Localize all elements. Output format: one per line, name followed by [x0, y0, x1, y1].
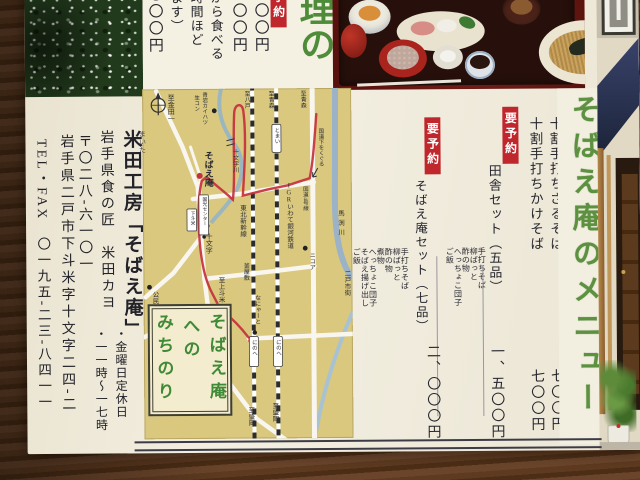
sobaean-location-dot [197, 173, 203, 179]
postal-code: 〒〇二八-六一〇一 [73, 134, 94, 273]
map-label-igr: IGRいわて銀河鉄道 [285, 182, 294, 250]
set-name: そばえ庵セット（七品） [411, 179, 431, 333]
menu-title-strip: そばえ庵のメニュー [557, 88, 599, 444]
map-label-center: 国光センター [201, 197, 207, 226]
tel-fax: TEL・FAX 〇一九五-二三-八四一一 [31, 139, 53, 411]
business-hours: ・一一時～一七時 [93, 328, 111, 432]
note-fragment: ります） [166, 0, 185, 33]
craftsman-line: 岩手県食の匠 米田カヨ [95, 130, 116, 312]
mabechi-river-line [334, 88, 352, 278]
map-title-col: みちのり [151, 313, 177, 405]
restaurant-entrance-photo [596, 0, 640, 450]
map-label-to-kamitomai: 至上斗米 [217, 276, 225, 304]
cut-title-fragment: 理の [288, 0, 333, 62]
top-cut-panel: 、〇〇〇円 ります） 二時間ほど てから食べる 、〇〇〇円 、〇〇〇円 要予約 … [142, 0, 333, 96]
price-fragment: 、〇〇〇円 [228, 0, 250, 54]
map-label-sobaean: そばえ庵 [203, 151, 214, 188]
map-label-kamayashiki: 釜屋敷 [242, 262, 249, 282]
map-label-shimotomai: 下斗米 [189, 211, 195, 227]
note-fragment: てから食べる [206, 0, 226, 61]
reservation-badge: 要予約 [502, 107, 518, 164]
note-fragment: 二時間ほど [186, 0, 205, 47]
map-label-namakon: 生コン [193, 94, 200, 112]
framed-picture [601, 0, 635, 35]
potted-plant [600, 360, 637, 432]
menu-item-price: 七〇〇円 [526, 369, 546, 433]
company-name: 米田工房「そばえ庵」 [117, 129, 145, 339]
set-name: 田舎セット（五品） [485, 164, 505, 295]
map-label-shinkansen: 東北新幹線 [238, 203, 246, 237]
landmark-dots [146, 108, 308, 336]
buckwheat-field-photo [24, 0, 143, 97]
lower-river-line [313, 312, 354, 439]
soba-meal-photo [332, 0, 585, 90]
set-price: 一、五〇〇円 [486, 344, 507, 440]
set-content-item: 手打ちそば [477, 247, 486, 319]
map-label-tomai-station: とまい [273, 127, 280, 144]
map-label-jumonji: 十文字 [205, 232, 213, 254]
plate-item [437, 19, 457, 32]
map-title-col: そばえ庵 [203, 313, 229, 405]
map-label-mabechi: 馬渕川 [336, 210, 344, 239]
plate-item [411, 21, 435, 35]
set-contents: 手打ちそば 柳ばっと 酢の物 煮物 へっちょこ団子 そばえ揚げ出し ご飯 [352, 247, 409, 319]
roof [597, 38, 640, 158]
red-flower [616, 424, 620, 428]
map-title-box: そばえ庵 への みちのり [148, 304, 233, 417]
price-fragment: 、〇〇〇円 [144, 0, 166, 54]
map-label-nanyato: なにゃーと [254, 295, 261, 325]
map-label-to-hachinohe: 至八戸 [243, 91, 250, 110]
reservation-badge: 要予約 [270, 0, 286, 27]
address: 岩手県二戸市下斗米字十文字二四-二 [55, 134, 77, 414]
small-dish-food [440, 50, 456, 62]
map-title-col: への [177, 317, 202, 363]
set-price: 二、〇〇〇円 [422, 344, 443, 440]
bowl-food [359, 6, 381, 21]
map-label-seigan: 青岩カイハツ [201, 91, 208, 126]
map-label-ninohe-station: にのへ [251, 339, 258, 356]
door-handle [621, 270, 625, 274]
map-label-to-aomori: 至青森 [267, 90, 274, 109]
map-label-ninohe-station: にのへ [275, 339, 282, 356]
map-label-to-aomori: 至青森 [299, 90, 306, 109]
section-divider [135, 438, 602, 451]
map-label-to-kindaichi: 至金田一 [167, 94, 175, 122]
closed-day: ・金曜日定休日 [113, 327, 131, 418]
set-content-item: 手打ちそば [400, 247, 409, 319]
entrance-floor [600, 442, 640, 450]
grain-dish [387, 45, 419, 69]
menu-item-name: 十割手打ちかけそば [524, 117, 545, 252]
price-fragment: 、〇〇〇円 [250, 0, 272, 54]
photo-of-soba-menu-flyer: 、〇〇〇円 ります） 二時間ほど てから食べる 、〇〇〇円 、〇〇〇円 要予約 … [0, 0, 640, 480]
map-label-route4: 国道4号線 [302, 186, 309, 211]
flyer-paper: 、〇〇〇円 ります） 二時間ほど てから食べる 、〇〇〇円 、〇〇〇円 要予約 … [24, 0, 640, 454]
set-contents: 手打ちそば 柳ばっと 酢の物 へっちょこ団子 ご飯 [447, 247, 486, 319]
dipping-sauce [470, 55, 490, 69]
map-label-under-route4: 国道下をくぐる [317, 128, 324, 167]
access-map: 至金田一 青岩カイハツ 生コン 至八戸 至青森 至青森 とまい 国道下をくぐる … [142, 88, 353, 439]
red-lacquer-cup [341, 24, 367, 58]
reservation-badge: 要予約 [424, 117, 440, 174]
